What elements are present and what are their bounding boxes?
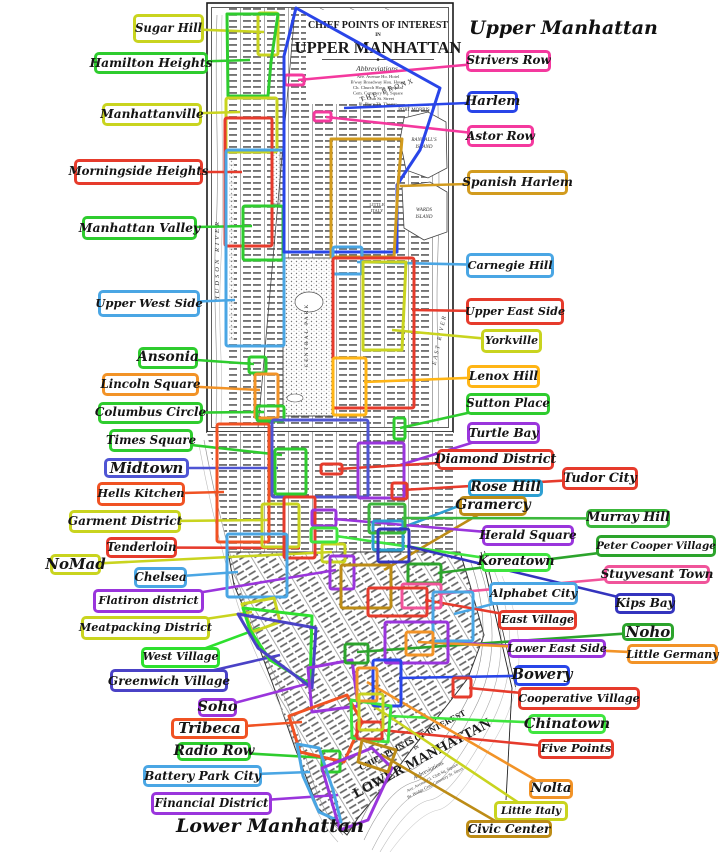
connector-peter-cooper-village (438, 546, 656, 573)
lower-manhattan-heading: Lower Manhattan (176, 815, 364, 837)
map-canvas: CHIEF POINTS OF INTEREST IN UPPER MANHAT… (0, 0, 720, 852)
connector-greenwich-village (169, 655, 280, 681)
little-italy-map-label: LITTLE (369, 202, 384, 207)
port-morris-label: PORT MORRIS (398, 108, 430, 113)
connector-murray-hill (402, 518, 628, 519)
wards-island-label2: ISLAND (415, 215, 433, 220)
central-park-label: CENTRAL PARK (304, 303, 310, 368)
riverside-park (229, 160, 234, 340)
connector-garment-district (125, 520, 268, 522)
little-italy-map-label2: ITALY (371, 208, 384, 213)
wards-island-label: WARDS (416, 208, 433, 213)
hudson-river-label: HUDSON RIVER (214, 219, 221, 302)
connector-meatpacking-district (146, 612, 253, 628)
manhattan-neighborhoods-map: CHIEF POINTS OF INTEREST IN UPPER MANHAT… (0, 0, 720, 852)
connector-upper-east-side (412, 310, 515, 312)
upper-manhattan-heading: Upper Manhattan (469, 17, 658, 39)
randalls-island-label2: ISLAND (415, 145, 433, 150)
connector-cooperative-village (469, 688, 579, 699)
connector-columbus-circle (151, 412, 265, 413)
the-pond (287, 394, 303, 402)
connector-battery-park-city (203, 772, 311, 776)
connector-civic-center (382, 755, 509, 829)
lower-map-title-line2: IN (413, 744, 420, 751)
lower-sheet-border (481, 552, 512, 688)
